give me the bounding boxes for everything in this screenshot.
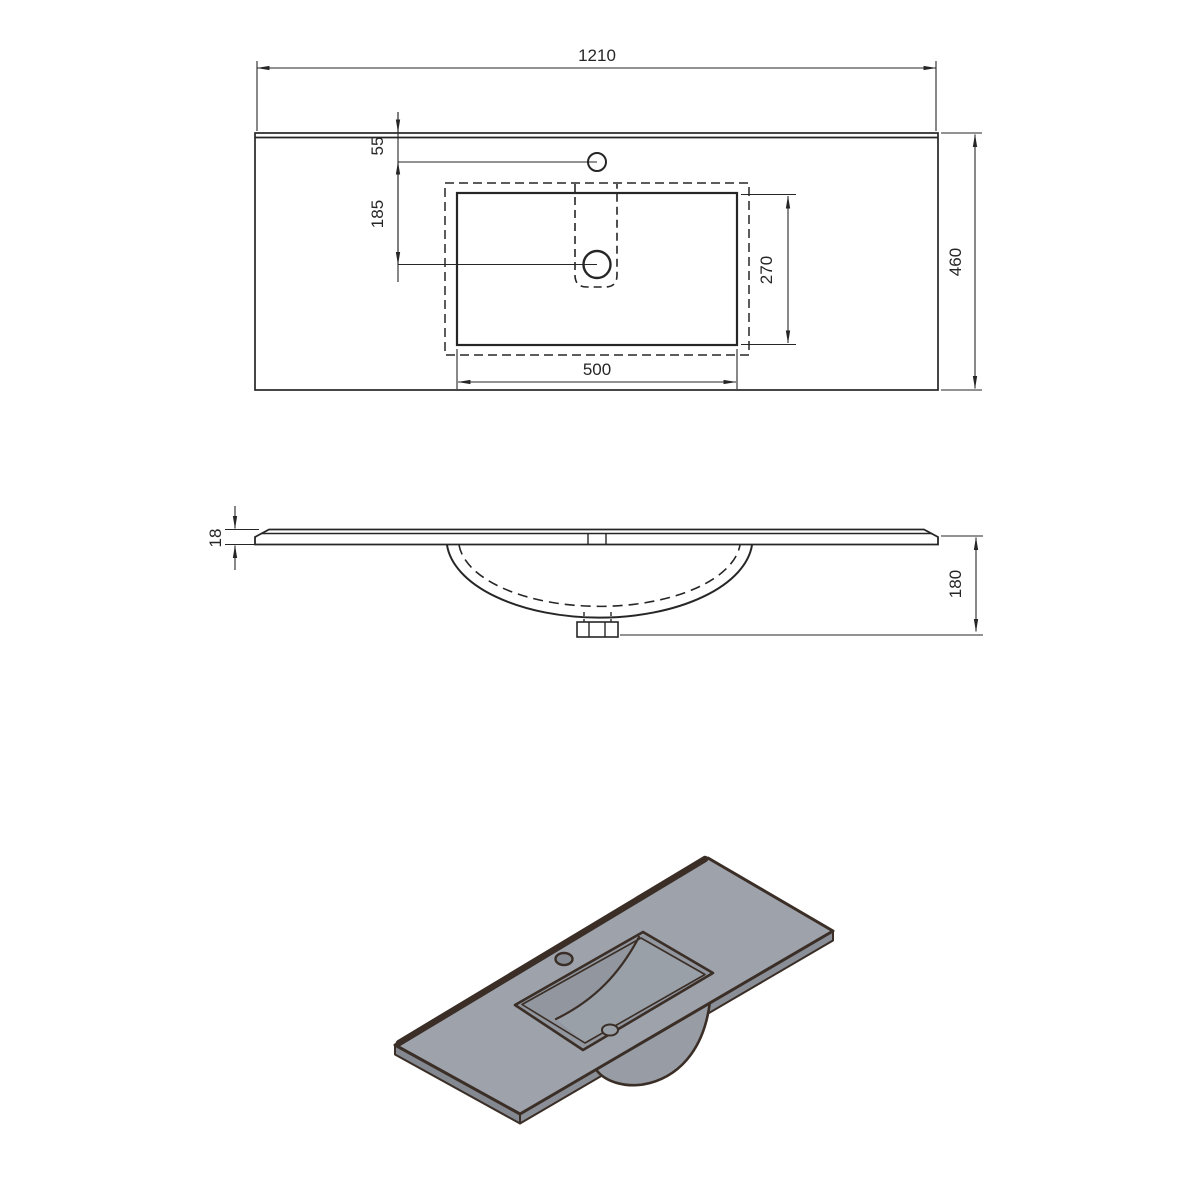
technical-drawing-svg: 1210 55 185 500 270 46	[0, 0, 1200, 1200]
dim-overall-height: 180	[620, 536, 983, 635]
top-view: 1210 55 185 500 270 46	[255, 46, 982, 390]
iso-drain-hole	[602, 1025, 618, 1036]
isometric-view	[395, 858, 833, 1124]
slab-profile	[255, 530, 938, 545]
dim-thickness: 18	[206, 506, 259, 570]
dim-label-500: 500	[583, 360, 611, 379]
dim-basin-width: 500	[457, 349, 737, 389]
dim-overall-depth: 460	[941, 133, 982, 390]
drawing-canvas: 1210 55 185 500 270 46	[0, 0, 1200, 1200]
iso-faucet-hole	[556, 953, 573, 965]
dim-label-180: 180	[946, 570, 965, 598]
side-view: 18 180	[206, 506, 983, 637]
dim-label-270: 270	[757, 256, 776, 284]
dim-label-1210: 1210	[578, 46, 616, 65]
drain-fitting	[577, 622, 618, 637]
dim-overall-width: 1210	[257, 46, 936, 131]
bowl-inner-curve-dashed	[459, 545, 740, 606]
dim-label-18: 18	[206, 529, 225, 548]
dim-label-185: 185	[368, 200, 387, 228]
dim-label-460: 460	[946, 248, 965, 276]
dim-label-55: 55	[368, 137, 387, 156]
